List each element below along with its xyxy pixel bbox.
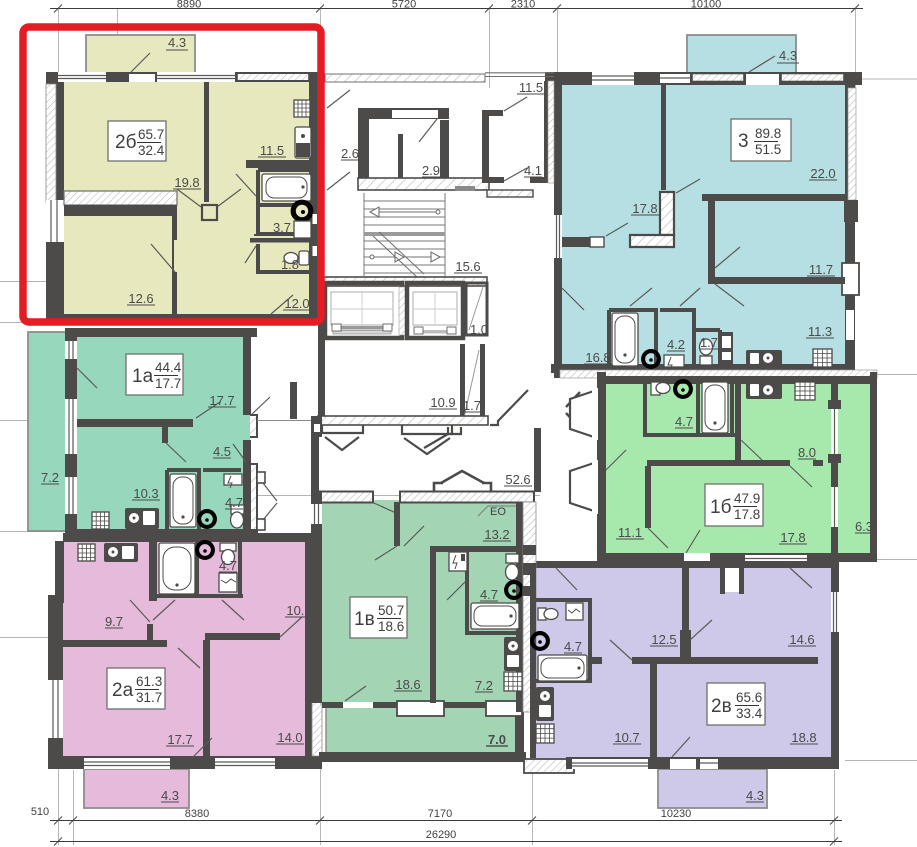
svg-text:9.7: 9.7 (105, 614, 123, 629)
svg-text:12.5: 12.5 (651, 632, 676, 647)
svg-text:2в: 2в (711, 696, 732, 717)
svg-text:2.9: 2.9 (422, 163, 440, 178)
svg-text:65.7: 65.7 (138, 127, 164, 142)
svg-text:4.3: 4.3 (168, 35, 186, 50)
svg-text:510: 510 (31, 806, 49, 818)
svg-text:11.1: 11.1 (618, 525, 642, 540)
svg-text:4.5: 4.5 (213, 444, 231, 459)
svg-text:17.7: 17.7 (155, 376, 181, 391)
svg-text:4.7: 4.7 (480, 587, 498, 602)
svg-text:ЕО: ЕО (490, 506, 506, 518)
svg-text:1в: 1в (354, 609, 375, 630)
svg-text:17.7: 17.7 (167, 732, 192, 747)
svg-text:15.6: 15.6 (455, 259, 480, 274)
svg-text:7170: 7170 (428, 808, 452, 820)
svg-text:7.0: 7.0 (488, 732, 506, 747)
svg-text:4.7: 4.7 (225, 495, 243, 510)
svg-text:52.6: 52.6 (505, 472, 530, 487)
svg-text:3: 3 (738, 131, 749, 152)
svg-text:8.0: 8.0 (798, 445, 816, 460)
svg-text:17.7: 17.7 (209, 393, 234, 408)
svg-text:10.3: 10.3 (133, 486, 158, 501)
svg-text:10230: 10230 (661, 808, 692, 820)
svg-text:4.1: 4.1 (524, 163, 542, 178)
svg-text:4.7: 4.7 (675, 414, 693, 429)
svg-text:4.3: 4.3 (161, 788, 179, 803)
svg-text:11.7: 11.7 (809, 262, 833, 277)
svg-text:5720: 5720 (392, 0, 416, 11)
svg-text:1.7: 1.7 (463, 398, 481, 413)
svg-text:11.5: 11.5 (260, 143, 284, 158)
svg-text:10.7: 10.7 (614, 730, 639, 745)
svg-text:12.6: 12.6 (128, 291, 153, 306)
svg-text:51.5: 51.5 (755, 142, 781, 157)
svg-text:4.7: 4.7 (219, 558, 237, 573)
svg-text:8890: 8890 (177, 0, 201, 11)
svg-text:18.6: 18.6 (395, 677, 420, 692)
svg-text:2310: 2310 (511, 0, 535, 11)
svg-text:16.8: 16.8 (585, 350, 610, 365)
svg-text:44.4: 44.4 (155, 360, 182, 375)
svg-text:89.8: 89.8 (755, 126, 781, 141)
svg-text:1.0: 1.0 (470, 322, 488, 337)
svg-text:12.0: 12.0 (284, 296, 309, 311)
svg-text:17.8: 17.8 (734, 507, 760, 522)
svg-text:4.2: 4.2 (667, 337, 685, 352)
svg-text:13.2: 13.2 (484, 527, 509, 542)
svg-text:1.7: 1.7 (700, 335, 718, 350)
svg-text:2.6: 2.6 (341, 146, 359, 161)
svg-text:26290: 26290 (426, 829, 457, 841)
svg-text:32.4: 32.4 (138, 143, 165, 158)
svg-text:11.5: 11.5 (519, 80, 543, 95)
svg-text:10100: 10100 (691, 0, 722, 11)
svg-text:4.3: 4.3 (746, 788, 764, 803)
svg-text:19.8: 19.8 (174, 175, 199, 190)
svg-text:31.7: 31.7 (136, 690, 162, 705)
svg-text:8380: 8380 (185, 808, 209, 820)
svg-text:1б: 1б (710, 497, 732, 518)
svg-text:7.2: 7.2 (41, 470, 59, 485)
svg-text:33.4: 33.4 (736, 706, 763, 721)
svg-text:47.9: 47.9 (734, 491, 760, 506)
svg-text:61.3: 61.3 (136, 674, 162, 689)
svg-text:2б: 2б (115, 132, 137, 153)
svg-text:14.6: 14.6 (789, 632, 814, 647)
svg-text:1.8: 1.8 (281, 257, 299, 272)
svg-text:17.8: 17.8 (780, 530, 805, 545)
svg-text:10.9: 10.9 (286, 603, 311, 618)
svg-text:11.3: 11.3 (808, 324, 832, 339)
svg-text:18.6: 18.6 (378, 619, 404, 634)
svg-text:17.8: 17.8 (632, 201, 657, 216)
svg-text:10.9: 10.9 (430, 395, 455, 410)
svg-text:18.8: 18.8 (791, 730, 816, 745)
svg-text:4.3: 4.3 (779, 48, 797, 63)
svg-text:65.6: 65.6 (736, 690, 762, 705)
svg-text:22.0: 22.0 (810, 166, 835, 181)
svg-text:2а: 2а (112, 680, 134, 701)
svg-text:50.7: 50.7 (378, 603, 404, 618)
svg-text:14.0: 14.0 (277, 730, 302, 745)
svg-text:3.7: 3.7 (273, 220, 291, 235)
svg-text:4.7: 4.7 (564, 639, 582, 654)
svg-text:1а: 1а (132, 366, 154, 387)
svg-text:7.2: 7.2 (475, 678, 493, 693)
svg-text:6.3: 6.3 (855, 519, 873, 534)
